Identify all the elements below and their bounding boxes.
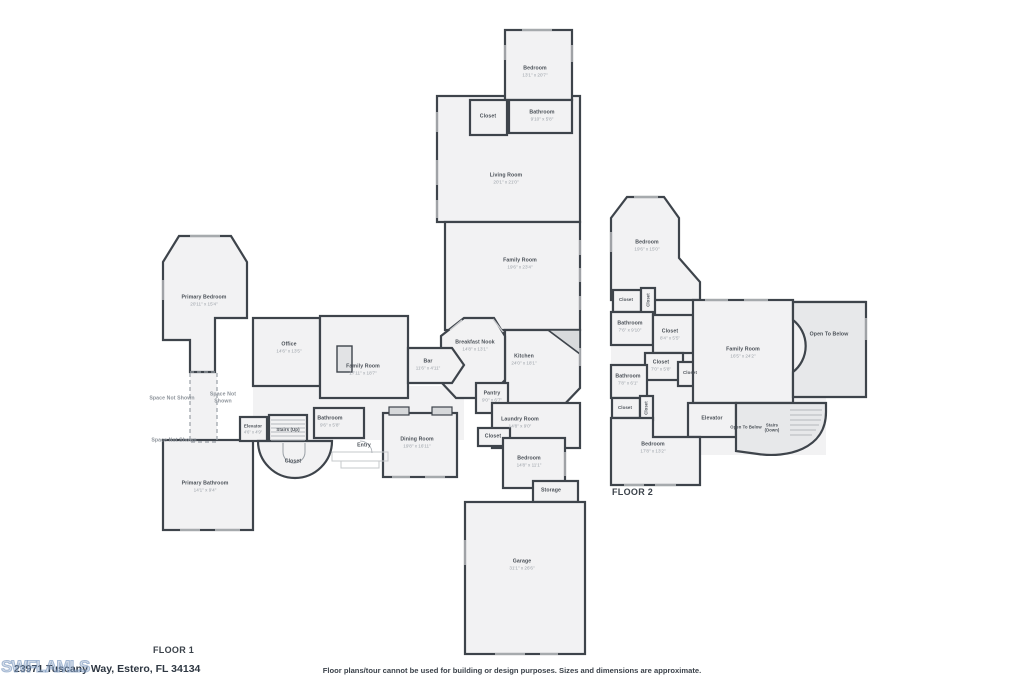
- room-shape-bathroom-f2a: [611, 312, 653, 345]
- room-shape-closet-f2a: [613, 290, 641, 312]
- floorplan-page: Bedroom13'1" x 20'7" Closet Bathroom9'10…: [0, 0, 1024, 682]
- room-shape-bedroom-top: [505, 30, 572, 100]
- media-niche-shape: [337, 346, 352, 372]
- room-shape-bedroom-f2: [611, 197, 700, 300]
- porch-post: [389, 407, 409, 415]
- room-shape-family-room-left: [320, 316, 408, 398]
- room-shape-office: [253, 318, 320, 386]
- room-shape-closet-f2b: [653, 315, 693, 353]
- porch-post: [432, 407, 452, 415]
- room-shape-closet-top: [470, 100, 507, 135]
- room-shape-family-room-f2: [693, 300, 793, 403]
- room-shape-primary-bedroom: [163, 236, 247, 372]
- room-shape-bathroom-hall: [314, 408, 364, 438]
- room-shape-bathroom-f2b: [611, 365, 647, 398]
- floor1-tag: FLOOR 1: [153, 645, 194, 655]
- room-shape-bar: [408, 348, 464, 383]
- room-shape-garage: [465, 502, 585, 654]
- floor2-rooms: [611, 197, 866, 485]
- room-shape-primary-bathroom: [163, 440, 253, 530]
- room-shape-elevator-f2: [688, 403, 736, 437]
- room-shape-closet-f2d: [612, 398, 640, 418]
- room-shape-dining-room: [383, 413, 457, 477]
- room-shape-stairs-up: [269, 415, 307, 443]
- room-shape-bathroom-top: [509, 100, 572, 133]
- floorplan-walls: [0, 0, 1024, 682]
- room-shape-family-room: [445, 222, 580, 330]
- entry-step: [341, 461, 379, 468]
- floor1-rooms: [163, 30, 585, 654]
- room-shape-elevator-f1: [240, 417, 267, 441]
- floor2-tag: FLOOR 2: [612, 487, 653, 497]
- room-shape-storage: [533, 481, 578, 502]
- room-shape-closet-f2d-v: [640, 396, 653, 420]
- entry-step: [332, 452, 388, 461]
- room-shape-closet-f2a-v: [641, 288, 655, 314]
- entry-door-arc: [360, 441, 372, 453]
- disclaimer-text: Floor plans/tour cannot be used for buil…: [0, 666, 1024, 675]
- room-shape-closet-curved: [258, 441, 332, 478]
